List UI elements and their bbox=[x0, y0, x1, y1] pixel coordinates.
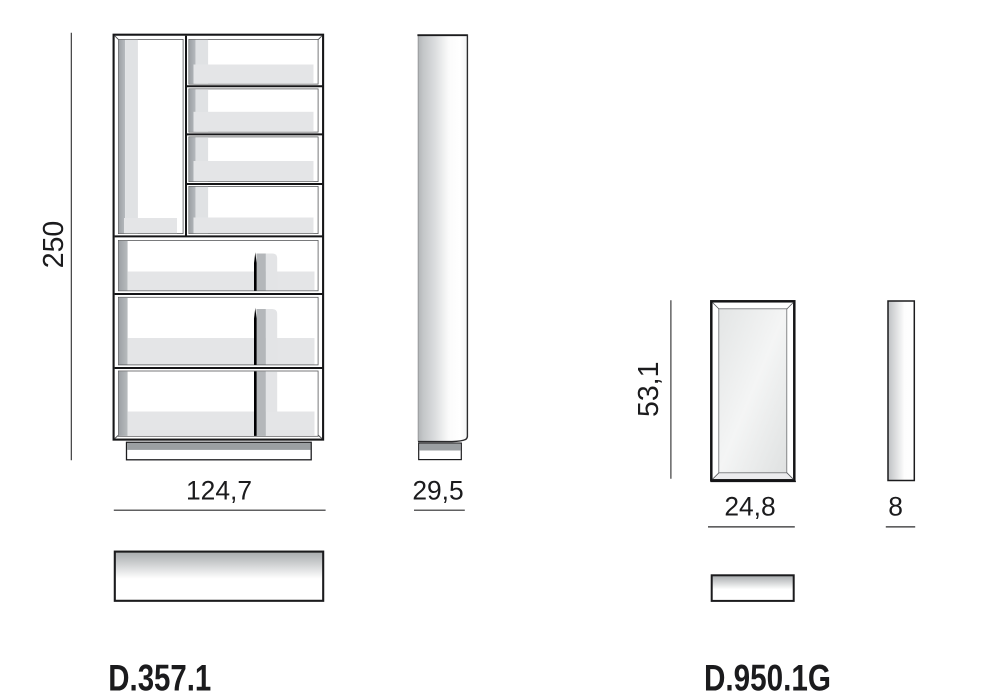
svg-text:D.357.1: D.357.1 bbox=[108, 656, 211, 698]
svg-text:8: 8 bbox=[888, 492, 903, 522]
svg-text:53,1: 53,1 bbox=[633, 362, 665, 417]
svg-text:29,5: 29,5 bbox=[412, 475, 463, 505]
svg-text:24,8: 24,8 bbox=[724, 492, 775, 522]
svg-text:250: 250 bbox=[38, 221, 70, 269]
svg-text:D.950.1G: D.950.1G bbox=[704, 656, 831, 698]
svg-text:124,7: 124,7 bbox=[186, 475, 252, 505]
